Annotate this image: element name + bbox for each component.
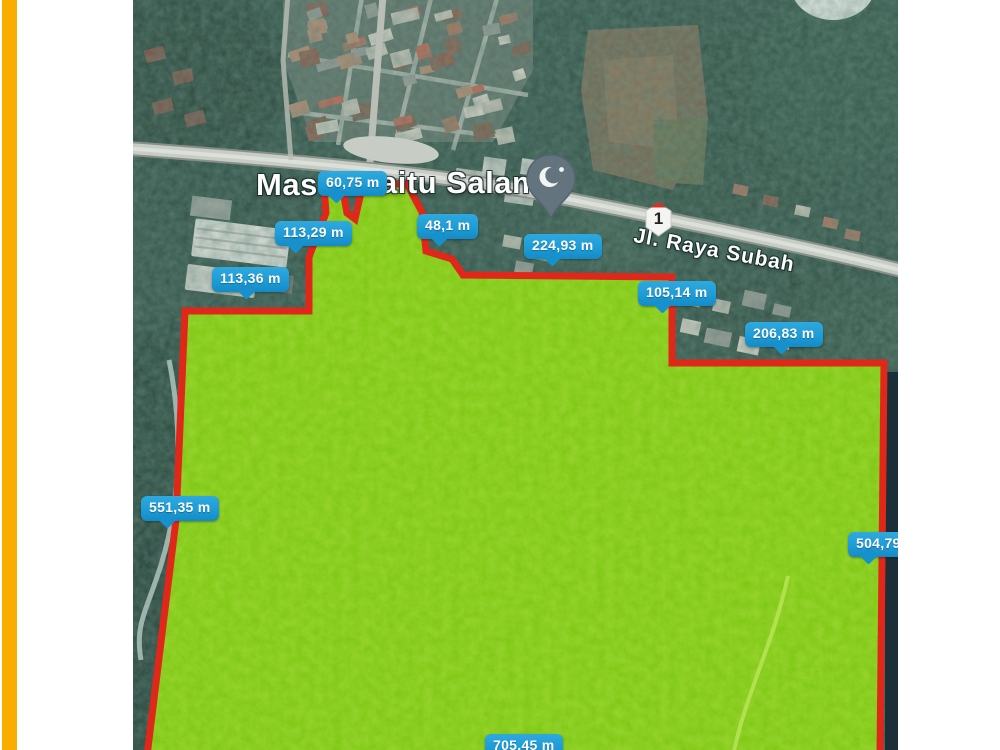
satellite-terrain [133, 0, 898, 750]
route-shield: 1 [644, 202, 673, 237]
place-label-right: aitu Salam [380, 165, 540, 201]
mosque-pin[interactable] [522, 152, 580, 222]
accent-bar [2, 0, 17, 750]
map-viewport[interactable]: Mas aitu Salam Jl. Raya Subah 1 60,75 m1… [133, 0, 898, 750]
screenshot-root: Mas aitu Salam Jl. Raya Subah 1 60,75 m1… [0, 0, 1000, 750]
place-label-left: Mas [256, 167, 318, 203]
route-number: 1 [644, 209, 673, 229]
